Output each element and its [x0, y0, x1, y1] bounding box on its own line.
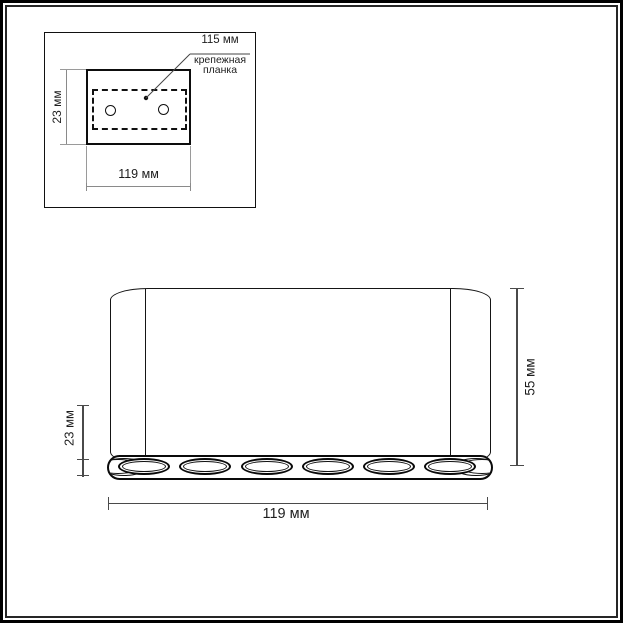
led-spot-3 — [241, 458, 293, 475]
total-height-dim-line — [516, 288, 517, 466]
top-view-inset-panel: 115 мм крепежная планка 23 мм 119 мм — [44, 32, 256, 208]
top-view-width-label: 119 мм — [88, 167, 189, 181]
dim-tick — [86, 183, 87, 191]
mounting-hole-1 — [105, 105, 116, 116]
strip-height-dim-line — [82, 405, 83, 477]
dim-tick — [487, 497, 488, 510]
dim-tick — [77, 475, 89, 476]
led-spot-1 — [118, 458, 170, 475]
extension-line — [60, 69, 86, 70]
body-edge-line-left — [145, 289, 146, 456]
led-spot-4 — [302, 458, 354, 475]
led-spot-inner-ring — [367, 461, 411, 472]
plate-width-label: 115 мм — [190, 34, 250, 46]
led-spot-5 — [363, 458, 415, 475]
dim-tick — [510, 288, 524, 289]
led-spot-inner-ring — [306, 461, 350, 472]
led-spot-inner-ring — [122, 461, 166, 472]
led-strip — [107, 455, 493, 480]
strip-height-label: 23 мм — [62, 410, 77, 446]
led-spot-2 — [179, 458, 231, 475]
front-width-dim-line — [108, 503, 488, 504]
top-view-height-dim-line — [66, 69, 67, 145]
total-height-label: 55 мм — [523, 358, 538, 395]
led-spot-inner-ring — [428, 461, 472, 472]
top-view-width-dim-line — [86, 186, 191, 187]
plate-name-label: крепежная планка — [184, 55, 256, 75]
front-width-label: 119 мм — [186, 506, 386, 522]
led-spot-inner-ring — [245, 461, 289, 472]
top-view-height-label: 23 мм — [50, 90, 64, 123]
dim-tick — [77, 405, 89, 406]
top-view-outline — [86, 69, 191, 145]
dim-tick — [108, 497, 109, 510]
mounting-hole-2 — [158, 104, 169, 115]
led-spot-inner-ring — [183, 461, 227, 472]
dim-tick — [190, 183, 191, 191]
fixture-body-outline — [110, 288, 491, 464]
drawing-canvas: 115 мм крепежная планка 23 мм 119 мм 23 … — [0, 0, 623, 623]
extension-line — [60, 144, 86, 145]
dim-tick — [510, 465, 524, 466]
dim-tick — [77, 459, 89, 460]
plate-name-line2: планка — [184, 65, 256, 75]
body-edge-line-right — [450, 289, 451, 456]
